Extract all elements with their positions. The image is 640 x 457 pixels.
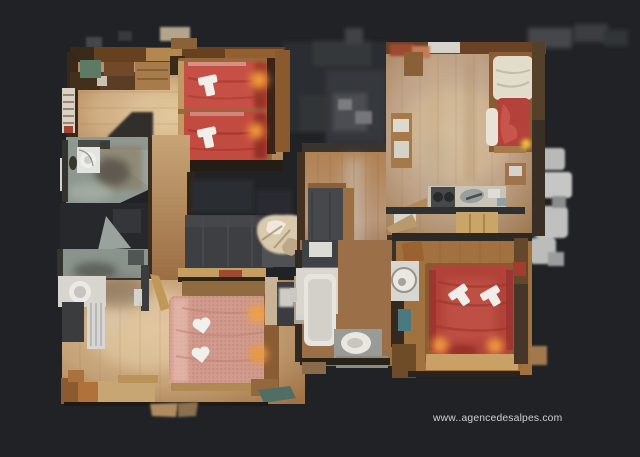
svg-text:www..agencedesalpes.com: www..agencedesalpes.com [432, 413, 562, 424]
